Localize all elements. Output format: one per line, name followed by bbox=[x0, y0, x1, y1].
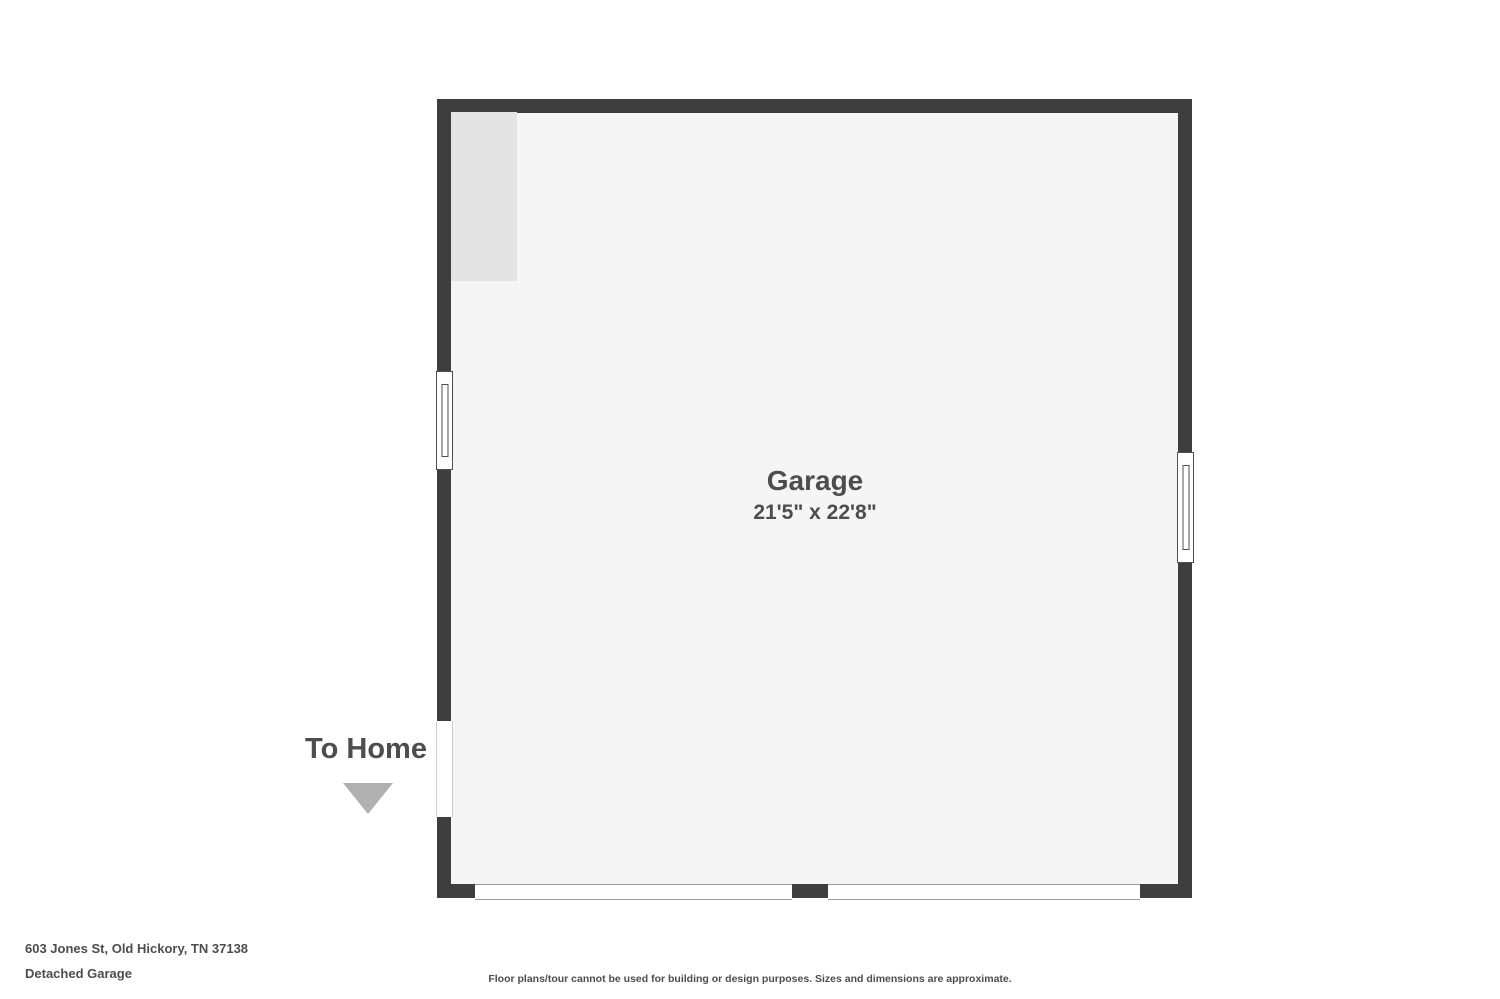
window-pane bbox=[1182, 465, 1189, 550]
window-pane bbox=[441, 384, 448, 457]
floorplan-canvas: Garage 21'5" x 22'8" To Home 603 Jones S… bbox=[0, 0, 1500, 999]
garage-door-opening-right bbox=[828, 884, 1140, 900]
garage-door-opening-left bbox=[475, 884, 792, 900]
room-dimensions-label: 21'5" x 22'8" bbox=[665, 501, 965, 525]
arrow-down-icon bbox=[343, 783, 393, 814]
disclaimer-text: Floor plans/tour cannot be used for buil… bbox=[0, 973, 1500, 985]
room-name-label: Garage bbox=[665, 465, 965, 497]
right-window-icon bbox=[1177, 452, 1194, 563]
storage-area bbox=[451, 112, 517, 281]
garage-room-outline bbox=[437, 99, 1192, 898]
property-address: 603 Jones St, Old Hickory, TN 37138 bbox=[25, 941, 248, 956]
to-home-label: To Home bbox=[256, 733, 476, 766]
left-window-icon bbox=[436, 371, 453, 470]
